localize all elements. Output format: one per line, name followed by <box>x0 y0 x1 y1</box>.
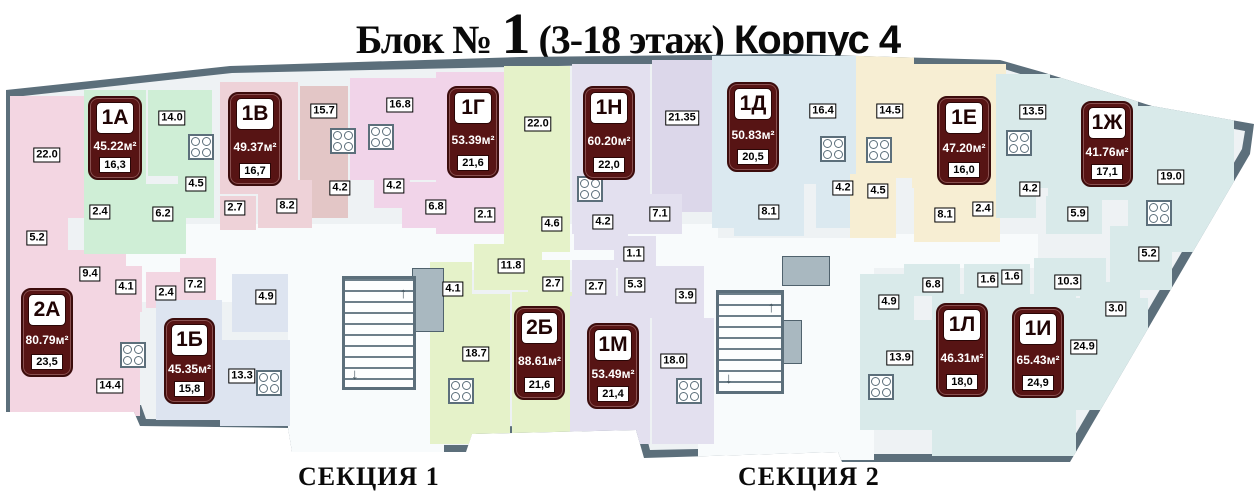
room-area-label: 2.7 <box>542 277 563 292</box>
apartment-badge-9: 2Б88.61м²21,6 <box>514 306 565 400</box>
apartment-total-area: 50.83м² <box>732 128 775 142</box>
section-1-label: СЕКЦИЯ 1 <box>298 462 440 492</box>
room-area-label: 14.0 <box>158 111 185 126</box>
room-area-label: 1.6 <box>1001 270 1022 285</box>
room-area-label: 24.9 <box>1070 340 1097 355</box>
apartment-code: 1Е <box>945 102 984 134</box>
room-area-label: 7.1 <box>649 207 670 222</box>
building-outline: 1А45.22м²16,31В49.37м²16,71Г53.39м²21,61… <box>0 0 1256 487</box>
room-area-label: 2.4 <box>155 286 176 301</box>
room-area-label: 21.35 <box>665 111 699 126</box>
stove-icon <box>368 124 394 150</box>
apartment-badge-12: 1И65.43м²24,9 <box>1012 307 1064 398</box>
apartment-code: 1А <box>96 102 135 134</box>
apartment-badge-0: 1А45.22м²16,3 <box>88 96 142 180</box>
apartment-total-area: 88.61м² <box>518 354 561 368</box>
apartment-badge-2: 1Г53.39м²21,6 <box>447 86 499 178</box>
stove-icon <box>866 137 892 163</box>
apartment-total-area: 41.76м² <box>1086 145 1129 159</box>
room-area-label: 2.1 <box>474 208 495 223</box>
apartment-code: 1Д <box>734 88 771 120</box>
stove-icon <box>120 342 146 368</box>
room-area-label: 2.7 <box>224 201 245 216</box>
apartment-total-area: 53.49м² <box>592 367 635 381</box>
room-area-label: 6.8 <box>922 278 943 293</box>
apartment-total-area: 53.39м² <box>452 133 495 147</box>
apartment-code: 2А <box>28 294 65 326</box>
apartment-total-area: 49.37м² <box>234 140 277 154</box>
apartment-living-area: 16,0 <box>948 162 979 178</box>
room-area-label: 4.2 <box>1019 182 1040 197</box>
room-area-label: 5.3 <box>624 278 645 293</box>
apartment-code: 1И <box>1019 313 1056 345</box>
room-area-label: 16.4 <box>809 104 836 119</box>
room-area-label: 2.4 <box>89 205 110 220</box>
apartment-badge-7: 2А80.79м²23,5 <box>21 288 73 377</box>
apartment-living-area: 24,9 <box>1022 375 1053 391</box>
room-area-label: 5.2 <box>1138 247 1159 262</box>
room-area-label: 8.1 <box>758 205 779 220</box>
stove-icon <box>1146 200 1172 226</box>
room-area-label: 4.5 <box>867 184 888 199</box>
room-area-label: 16.8 <box>386 98 413 113</box>
apartment-badge-11: 1Л46.31м²18,0 <box>936 303 988 397</box>
apartment-badge-6: 1Ж41.76м²17,1 <box>1081 101 1133 187</box>
floor-plan: 1А45.22м²16,31В49.37м²16,71Г53.39м²21,61… <box>0 0 1256 487</box>
stove-icon <box>448 378 474 404</box>
apartment-badge-5: 1Е47.20м²16,0 <box>937 96 991 185</box>
room-area-label: 3.0 <box>1105 302 1126 317</box>
stove-icon <box>188 134 214 160</box>
apartment-badge-1: 1В49.37м²16,7 <box>228 92 282 186</box>
apartment-code: 1М <box>594 329 631 361</box>
room-area-label: 15.7 <box>310 104 337 119</box>
apartment-living-area: 17,1 <box>1091 164 1122 180</box>
staircase-icon <box>716 290 784 394</box>
room-area-label: 4.2 <box>592 215 613 230</box>
stove-icon <box>1006 130 1032 156</box>
room-area-label: 13.9 <box>886 351 913 366</box>
apartment-code: 1Н <box>590 92 627 124</box>
apartment-total-area: 45.35м² <box>168 362 211 376</box>
apartment-code: 1Б <box>171 324 207 356</box>
room-area-label: 13.5 <box>1019 105 1046 120</box>
floor-plan-page: { "title": { "block_label": "Блок №", "b… <box>0 0 1256 487</box>
apartment-code: 1Ж <box>1088 107 1125 139</box>
apartment-badge-8: 1Б45.35м²15,8 <box>164 318 215 404</box>
apartment-living-area: 15,8 <box>174 381 205 397</box>
room-area-label: 6.8 <box>425 200 446 215</box>
room-area-label: 4.1 <box>442 282 463 297</box>
room-area-label: 4.9 <box>255 290 276 305</box>
stove-icon <box>256 370 282 396</box>
apartment-living-area: 21,6 <box>457 155 488 171</box>
apartment-total-area: 45.22м² <box>94 139 137 153</box>
room-area-label: 6.2 <box>152 207 173 222</box>
room-area-label: 2.4 <box>972 202 993 217</box>
apartment-total-area: 65.43м² <box>1017 353 1060 367</box>
room-area-label: 19.0 <box>1157 170 1184 185</box>
apartment-living-area: 21,4 <box>597 386 628 402</box>
stove-icon <box>868 374 894 400</box>
apartment-total-area: 60.20м² <box>588 134 631 148</box>
room-area-label: 1.1 <box>623 247 644 262</box>
room-area-label: 4.5 <box>185 177 206 192</box>
stove-icon <box>820 136 846 162</box>
room-lavender-dark <box>652 60 714 212</box>
room-area-label: 4.2 <box>832 181 853 196</box>
room-area-label: 10.3 <box>1054 275 1081 290</box>
room-area-label: 4.1 <box>115 280 136 295</box>
room-area-label: 5.2 <box>26 231 47 246</box>
room-area-label: 4.2 <box>383 179 404 194</box>
apartment-total-area: 47.20м² <box>943 141 986 155</box>
room-area-label: 14.4 <box>96 379 123 394</box>
room-area-label: 22.0 <box>33 148 60 163</box>
room-area-label: 8.1 <box>934 208 955 223</box>
staircase-icon <box>342 276 416 390</box>
room-area-label: 14.5 <box>876 104 903 119</box>
apartment-code: 1Г <box>454 92 491 124</box>
apartment-living-area: 22,0 <box>593 157 624 173</box>
apartment-living-area: 16,7 <box>239 163 270 179</box>
room-area-label: 4.9 <box>878 295 899 310</box>
apartment-living-area: 16,3 <box>99 157 130 173</box>
apartment-badge-3: 1Н60.20м²22,0 <box>583 86 635 180</box>
room-area-label: 4.6 <box>541 217 562 232</box>
apartment-badge-10: 1М53.49м²21,4 <box>587 323 639 409</box>
stove-icon <box>676 378 702 404</box>
elevator-shaft <box>412 268 444 332</box>
room-area-label: 5.9 <box>1067 207 1088 222</box>
room-area-label: 3.9 <box>675 289 696 304</box>
room-area-label: 22.0 <box>524 117 551 132</box>
stove-icon <box>330 128 356 154</box>
apartment-code: 1В <box>236 98 275 130</box>
room-area-label: 18.7 <box>462 347 489 362</box>
room-area-label: 8.2 <box>276 199 297 214</box>
apartment-code: 1Л <box>943 309 980 341</box>
apartment-living-area: 18,0 <box>946 374 977 390</box>
apartment-total-area: 46.31м² <box>941 351 984 365</box>
room-area-label: 9.4 <box>79 267 100 282</box>
room-area-label: 1.6 <box>977 273 998 288</box>
room-area-label: 18.0 <box>660 354 687 369</box>
room-blue <box>790 56 864 184</box>
apartment-living-area: 21,6 <box>524 377 555 393</box>
apartment-code: 2Б <box>521 312 557 344</box>
room-area-label: 7.2 <box>184 278 205 293</box>
apartment-living-area: 20,5 <box>737 149 768 165</box>
apartment-total-area: 80.79м² <box>26 333 69 347</box>
section-2-label: СЕКЦИЯ 2 <box>738 462 880 492</box>
apartment-living-area: 23,5 <box>31 354 62 370</box>
room-area-label: 13.3 <box>228 369 255 384</box>
room-area-label: 11.8 <box>498 259 525 274</box>
apartment-badge-4: 1Д50.83м²20,5 <box>727 82 779 172</box>
room-area-label: 2.7 <box>585 280 606 295</box>
elevator-shaft <box>782 256 830 286</box>
room-area-label: 4.2 <box>329 181 350 196</box>
